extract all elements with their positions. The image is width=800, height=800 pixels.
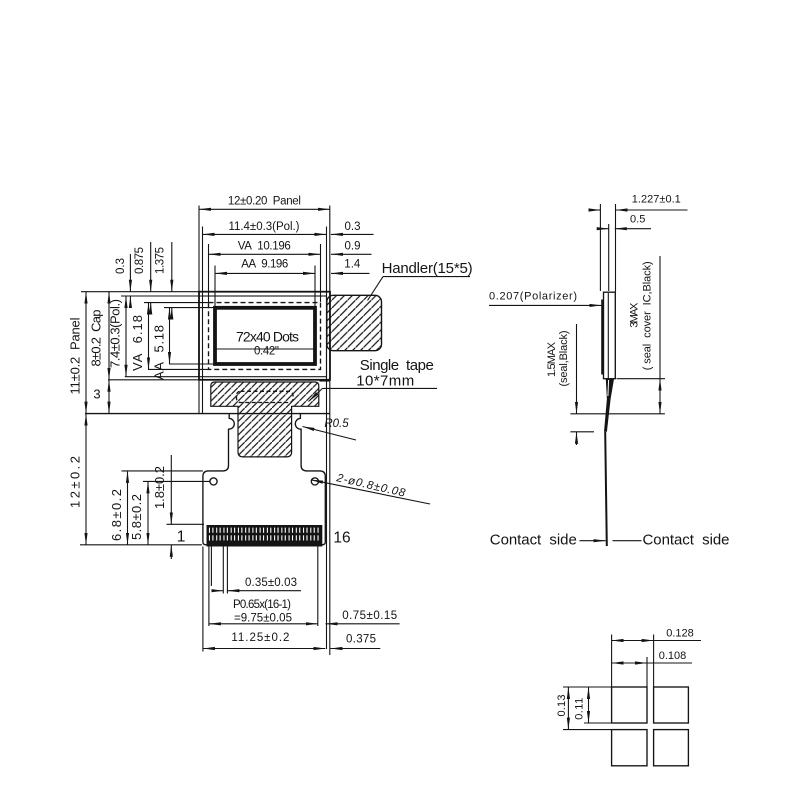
svg-text:0.207(Polarizer): 0.207(Polarizer) — [489, 291, 577, 303]
svg-text:7.4±0.3(Pol.): 7.4±0.3(Pol.) — [108, 299, 123, 368]
svg-text:1.375: 1.375 — [155, 247, 167, 274]
svg-text:72x40 Dots: 72x40 Dots — [236, 329, 299, 345]
svg-text:0.35±0.03: 0.35±0.03 — [245, 577, 297, 589]
svg-text:0.3: 0.3 — [345, 221, 361, 233]
svg-text:0.42": 0.42" — [254, 346, 279, 358]
svg-text:8±0.2 Cap: 8±0.2 Cap — [89, 310, 104, 367]
svg-text:P0.65x(16-1): P0.65x(16-1) — [233, 599, 291, 611]
svg-text:0.9: 0.9 — [345, 241, 361, 253]
svg-text:Contact side: Contact side — [643, 532, 730, 549]
svg-text:2-ø0.8±0.08: 2-ø0.8±0.08 — [334, 472, 406, 500]
svg-text:10*7mm: 10*7mm — [356, 373, 414, 390]
svg-text:R0.5: R0.5 — [324, 418, 349, 430]
svg-text:0.128: 0.128 — [666, 628, 694, 640]
svg-text:16: 16 — [333, 530, 350, 547]
svg-text:1.5MAX: 1.5MAX — [546, 341, 558, 377]
svg-text:6.8±0.2: 6.8±0.2 — [109, 489, 124, 541]
svg-text:3: 3 — [93, 387, 100, 402]
svg-text:0.75±0.15: 0.75±0.15 — [342, 610, 397, 622]
svg-text:Contact side: Contact side — [490, 532, 577, 549]
svg-text:AA 5.18: AA 5.18 — [152, 325, 167, 380]
svg-text:0.13: 0.13 — [556, 695, 568, 717]
svg-text:11±0.2 Panel: 11±0.2 Panel — [68, 317, 83, 394]
svg-text:=9.75±0.05: =9.75±0.05 — [234, 613, 292, 625]
svg-text:0.3: 0.3 — [115, 258, 127, 274]
svg-text:0.5: 0.5 — [630, 214, 645, 226]
svg-text:Handler(15*5): Handler(15*5) — [382, 260, 473, 277]
svg-text:5.8±0.2: 5.8±0.2 — [129, 494, 144, 540]
svg-text:VA 6.18: VA 6.18 — [130, 315, 145, 371]
svg-text:0.375: 0.375 — [346, 634, 376, 646]
svg-text:12±0.2: 12±0.2 — [68, 456, 83, 508]
svg-text:3MAX: 3MAX — [629, 302, 641, 328]
svg-text:12±0.20 Panel: 12±0.20 Panel — [228, 196, 301, 208]
svg-text:VA 10.196: VA 10.196 — [238, 241, 291, 253]
svg-text:0.108: 0.108 — [659, 650, 687, 662]
svg-text:( seal cover IC,Black): ( seal cover IC,Black) — [642, 261, 654, 370]
svg-text:AA 9.196: AA 9.196 — [241, 259, 288, 271]
svg-text:0.11: 0.11 — [573, 698, 585, 720]
svg-text:1.4: 1.4 — [344, 259, 361, 271]
svg-text:(seal,Black): (seal,Black) — [558, 331, 570, 387]
svg-text:Single tape: Single tape — [360, 357, 434, 374]
svg-text:1: 1 — [177, 529, 186, 546]
svg-text:1.8±0.2: 1.8±0.2 — [152, 466, 167, 509]
svg-text:1.227±0.1: 1.227±0.1 — [632, 194, 681, 206]
svg-text:11.4±0.3(Pol.): 11.4±0.3(Pol.) — [229, 221, 300, 233]
svg-text:0.875: 0.875 — [134, 247, 146, 274]
svg-text:11.25±0.2: 11.25±0.2 — [231, 632, 289, 644]
